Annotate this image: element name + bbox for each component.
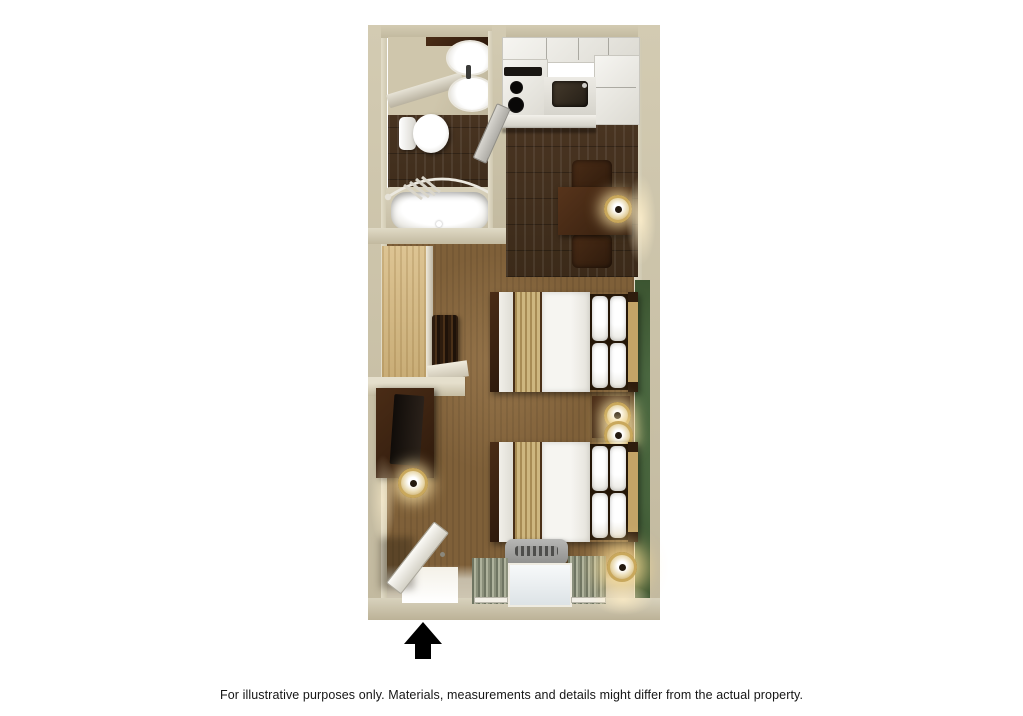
headboard [628, 292, 638, 392]
bed-runner [513, 442, 542, 542]
wall-glow [593, 585, 653, 615]
wall-glow [626, 175, 656, 265]
lamp-finial-icon [410, 480, 417, 487]
pillow [610, 296, 626, 341]
bed-sheet-foot [499, 292, 513, 392]
refrigerator-counter [594, 55, 640, 125]
bathroom-wall-bottom [368, 228, 506, 244]
bathtub-drain [436, 221, 442, 227]
lamp-finial-icon [619, 564, 626, 571]
dining-chair [572, 234, 612, 268]
curtain-rod-icon [474, 597, 508, 603]
bed-duvet [542, 442, 590, 542]
sink-faucet [582, 83, 587, 88]
floor-plan-page: For illustrative purposes only. Material… [0, 0, 1023, 716]
bed-pillows [590, 444, 628, 540]
wall-glow [370, 455, 396, 545]
lamp-finial-icon [614, 412, 621, 419]
toilet-bowl [413, 114, 449, 153]
pillow [592, 493, 608, 538]
cabinet-seam [546, 38, 547, 60]
lamp-finial-icon [615, 432, 622, 439]
bed-runner [513, 292, 542, 392]
pillow [592, 296, 608, 341]
pillow [610, 446, 626, 491]
stove-control-panel [504, 67, 542, 76]
entrance-arrow-icon [402, 621, 444, 661]
window [508, 563, 572, 607]
bed-sheet-foot [499, 442, 513, 542]
counter-seam [596, 87, 636, 88]
floor-plan-rendering [368, 25, 660, 620]
stove-burner [510, 81, 523, 94]
bed-2 [490, 442, 638, 542]
dresser-lamp [398, 468, 428, 498]
counter-shadow [502, 128, 596, 133]
sink-faucet [466, 65, 471, 79]
bed-1 [490, 292, 638, 392]
bed-duvet [542, 292, 590, 392]
pillow [592, 446, 608, 491]
pillow [592, 343, 608, 388]
counter-front-edge [502, 115, 596, 128]
bed-foot-frame [490, 292, 499, 392]
pillow [610, 493, 626, 538]
pillow [610, 343, 626, 388]
lamp-finial-icon [615, 206, 622, 213]
ac-vent-icon [515, 546, 558, 556]
floor-lamp [607, 552, 637, 582]
door-knob-icon [440, 552, 445, 557]
headboard [628, 442, 638, 542]
stove-burner [508, 97, 524, 113]
bed-pillows [590, 294, 628, 390]
disclaimer-caption: For illustrative purposes only. Material… [0, 688, 1023, 702]
cabinet-seam [578, 38, 579, 60]
closet-shelf-panel [382, 246, 428, 377]
bed-foot-frame [490, 442, 499, 542]
